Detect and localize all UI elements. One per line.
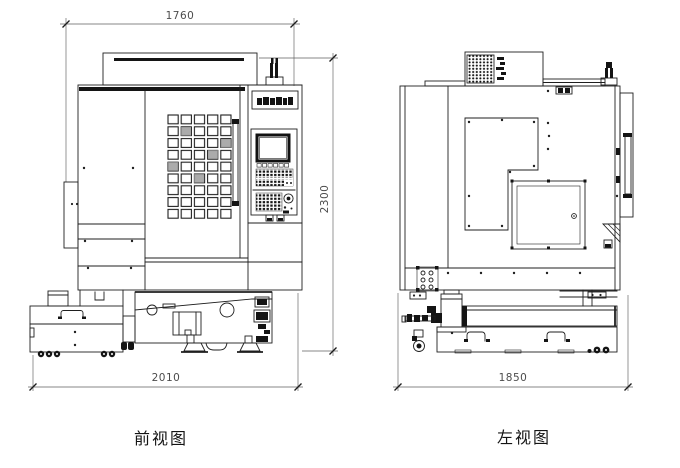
front-view-base (30, 290, 272, 357)
left-view-label: 左视图 (497, 428, 551, 447)
front-caster (412, 330, 425, 352)
left-enclosure-body (400, 86, 620, 290)
tank-wheels (588, 347, 610, 354)
electrical-cabinet-panel (64, 167, 145, 269)
left-view: 1850 (393, 52, 633, 447)
conveyor-link (121, 316, 135, 350)
front-view-label: 前视图 (134, 429, 188, 448)
keyboard-block (256, 169, 293, 186)
brand-logo-icon (257, 97, 293, 105)
control-screen (257, 135, 289, 161)
technical-drawing: 1760 2300 2010 (0, 0, 680, 468)
heat-exchanger-box (465, 52, 543, 86)
screw-dots-column (547, 122, 550, 150)
front-view: 1760 2300 2010 (28, 10, 338, 448)
door-handle (232, 119, 239, 206)
top-ledges (425, 62, 617, 94)
signal-lamp-post-icon (266, 58, 283, 85)
vent-grille-icon (467, 55, 494, 83)
l-shaped-cover-panel (465, 118, 538, 230)
cnc-control-pendant (251, 91, 298, 221)
lube-valve-assembly (254, 297, 270, 342)
front-bottom-dimension-value: 2010 (152, 372, 181, 384)
base-window-frame (173, 312, 201, 335)
rear-support (560, 290, 617, 306)
left-bottom-dimension-value: 1850 (499, 372, 528, 384)
machine-base-block (135, 292, 272, 350)
perforated-door-panel (167, 114, 239, 220)
left-view-base (402, 290, 617, 353)
lower-button-panel (256, 193, 293, 214)
jog-knob-icon (284, 194, 293, 203)
chip-conveyor-tank (30, 290, 123, 352)
support-bracket (603, 224, 620, 248)
side-access-box (64, 182, 78, 248)
pendant-side-rail (603, 93, 633, 248)
access-cover-panel (511, 180, 587, 250)
drawing-canvas: 1760 2300 2010 (0, 0, 680, 468)
piping-assembly (402, 306, 442, 323)
softkey-row (257, 164, 289, 168)
coolant-tank-upper (462, 306, 617, 326)
signal-post-icon (601, 62, 617, 85)
pendant-feet (266, 215, 284, 221)
leveling-foot-center (181, 335, 208, 352)
top-bracket (556, 87, 572, 94)
side-grille-panel (410, 266, 439, 299)
front-height-dimension-value: 2300 (319, 185, 331, 214)
front-top-dimension-value: 1760 (166, 10, 195, 22)
